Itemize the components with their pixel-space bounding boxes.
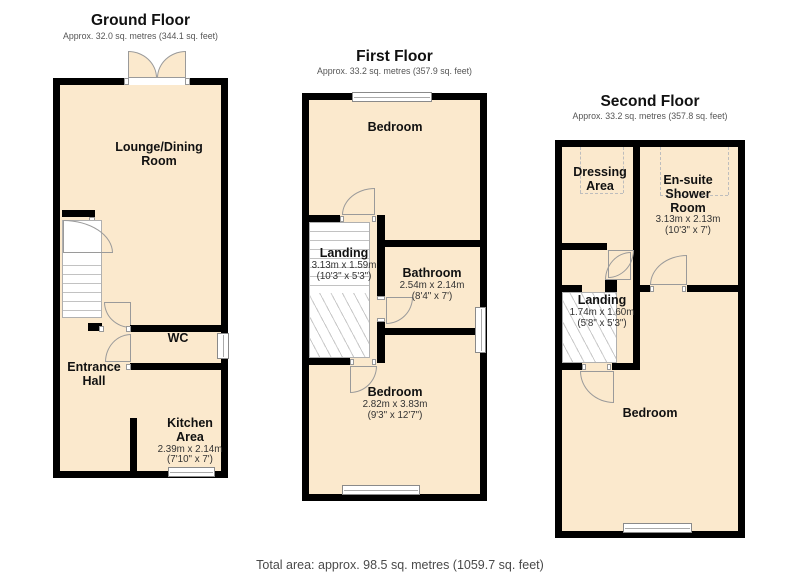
ground-floor-plan: Lounge/Dining Room WC Entrance Hall Kitc…: [53, 78, 228, 478]
door-jamb: [582, 364, 586, 370]
stair-winder-treads: [310, 293, 370, 358]
staircase: [309, 222, 370, 358]
door-jamb: [377, 318, 385, 322]
kitchen-window: [168, 467, 215, 477]
first-floor-subtitle: Approx. 33.2 sq. metres (357.9 sq. feet): [272, 66, 517, 76]
french-door-opening: [128, 78, 186, 85]
room-name: Bedroom: [345, 121, 445, 135]
wc-door-arc: [105, 334, 131, 362]
landing-bathroom-wall-lower: [377, 322, 385, 363]
room-name: Bathroom: [382, 267, 482, 281]
room-name: Landing: [296, 247, 392, 261]
room-label-lounge: Lounge/Dining Room: [84, 141, 234, 169]
ensuite-door-arc: [650, 255, 687, 285]
room-label-landing: Landing 1.74m x 1.60m (5'8" x 5'3"): [554, 294, 650, 329]
second-floor-title: Second Floor: [527, 93, 773, 111]
room-dim-imperial: (5'8" x 5'3"): [554, 319, 650, 330]
room-dim-imperial: (9'3" x 12'7"): [345, 411, 445, 422]
bathroom-bottom-wall: [385, 328, 480, 335]
room-name: WC: [148, 332, 208, 346]
room-label-ensuite: En-suite Shower Room 3.13m x 2.13m (10'3…: [638, 174, 738, 237]
room-dim-metric: 2.82m x 3.83m: [345, 400, 445, 411]
room-dim-metric: 2.54m x 2.14m: [382, 281, 482, 292]
dressing-bottom-wall: [562, 243, 607, 250]
kitchen-stub-wall: [130, 418, 137, 471]
french-door-right-leaf: [157, 51, 186, 78]
room-dim-metric: 3.13m x 1.59m: [296, 261, 392, 272]
room-label-bedroom: Bedroom: [600, 407, 700, 421]
room-name: Dressing Area: [550, 166, 650, 194]
bedroom-back-wall: [309, 358, 350, 365]
room-name: Bedroom: [600, 407, 700, 421]
bedroom-back-window: [342, 485, 420, 495]
room-name: En-suite Shower Room: [638, 174, 738, 215]
door-jamb: [372, 216, 376, 222]
bathroom-window: [475, 307, 486, 353]
door-jamb: [350, 359, 354, 365]
room-name: Entrance Hall: [54, 361, 134, 389]
room-label-dressing: Dressing Area: [550, 166, 650, 194]
door-jamb: [372, 359, 376, 365]
room-dim-imperial: (7'10" x 7'): [140, 455, 240, 466]
ensuite-bottom-wall-left: [633, 285, 650, 292]
landing-bottom-wall-left: [562, 363, 582, 370]
door-jamb: [126, 326, 131, 332]
door-jamb: [607, 364, 611, 370]
french-door-left-leaf: [128, 51, 157, 78]
first-floor-title: First Floor: [272, 48, 517, 66]
room-name: Kitchen Area: [140, 417, 240, 445]
landing-top-wall: [309, 215, 340, 222]
ensuite-bottom-wall-right: [687, 285, 738, 292]
door-jamb: [99, 326, 104, 332]
landing-top-wall: [562, 285, 582, 292]
room-name: Landing: [554, 294, 650, 308]
room-label-bathroom: Bathroom 2.54m x 2.14m (8'4" x 7'): [382, 267, 482, 302]
kitchen-wall: [130, 363, 221, 370]
bedroom-window: [623, 523, 692, 533]
room-label-kitchen: Kitchen Area 2.39m x 2.14m (7'10" x 7'): [140, 417, 240, 466]
room-name: Lounge/Dining Room: [84, 141, 234, 169]
room-dim-imperial: (10'3" x 5'3"): [296, 272, 392, 283]
door-jamb: [185, 78, 190, 85]
bedroom-front-window: [352, 92, 432, 102]
room-label-bedroom-front: Bedroom: [345, 121, 445, 135]
stair-stub-wall: [62, 210, 95, 217]
second-floor-subtitle: Approx. 33.2 sq. metres (357.8 sq. feet): [527, 111, 773, 121]
ground-floor-subtitle: Approx. 32.0 sq. metres (344.1 sq. feet): [18, 31, 263, 41]
ground-floor-title: Ground Floor: [18, 12, 263, 30]
landing-bottom-wall-right: [612, 363, 640, 370]
room-label-entrance-hall: Entrance Hall: [54, 361, 134, 389]
total-area-text: Total area: approx. 98.5 sq. metres (105…: [150, 558, 650, 572]
room-name: Bedroom: [345, 386, 445, 400]
room-label-landing: Landing 3.13m x 1.59m (10'3" x 5'3"): [296, 247, 392, 282]
door-jamb: [682, 286, 686, 292]
bedroom-door-arc: [580, 371, 614, 403]
bedroom-front-door-arc: [342, 188, 375, 215]
room-label-wc: WC: [148, 332, 208, 346]
bathroom-top-wall: [385, 240, 480, 247]
stair-treads: [63, 257, 102, 318]
room-dim-imperial: (10'3" x 7'): [638, 226, 738, 237]
door-jamb: [650, 286, 654, 292]
second-floor-plan: Dressing Area En-suite Shower Room 3.13m…: [555, 140, 745, 538]
hall-door-arc: [104, 302, 131, 328]
room-label-bedroom-back: Bedroom 2.82m x 3.83m (9'3" x 12'7"): [345, 386, 445, 421]
stair-door-arc: [63, 220, 113, 253]
room-dim-imperial: (8'4" x 7'): [382, 292, 482, 303]
room-dim-metric: 1.74m x 1.60m: [554, 308, 650, 319]
first-floor-plan: Bedroom Landing 3.13m x 1.59m (10'3" x 5…: [302, 93, 487, 501]
wc-window: [217, 333, 229, 359]
floorplan-page: { "floors": { "ground": { "title": "Grou…: [0, 0, 800, 582]
door-jamb: [124, 78, 129, 85]
